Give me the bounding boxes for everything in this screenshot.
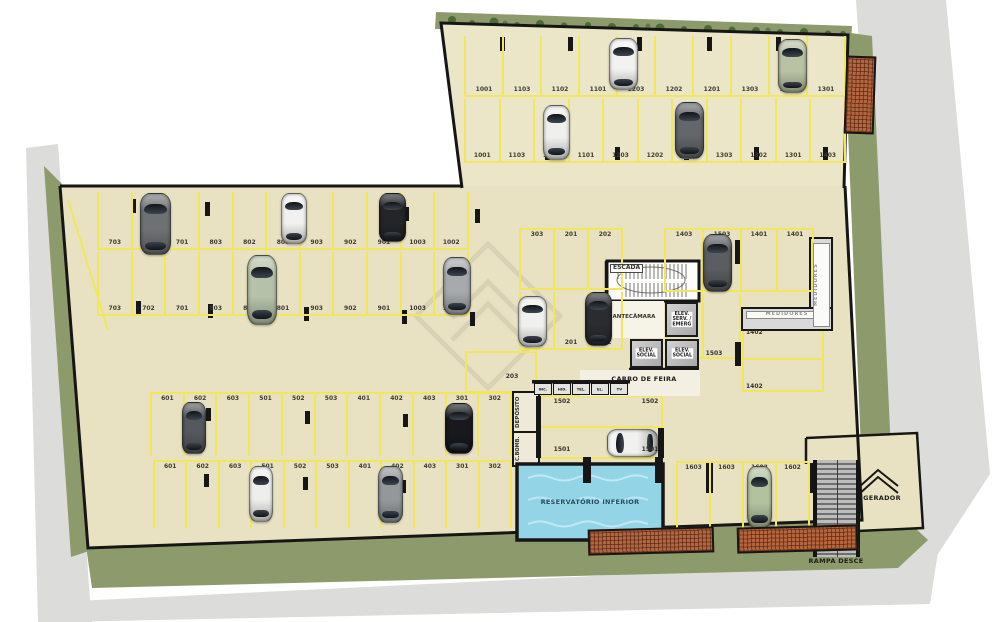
parking-stall: 502 — [281, 394, 314, 456]
brick-planter — [737, 524, 859, 553]
parking-stall: 403 — [412, 394, 445, 456]
parking-stall: 1401 — [776, 230, 814, 290]
parking-stall: 603 — [215, 394, 248, 456]
stall-number: 1001 — [474, 153, 491, 159]
pump-room-label: C.BOMB. — [516, 434, 536, 464]
service-elevator: ELEV. SERV. / EMERG — [665, 302, 698, 337]
stall-number: 402 — [390, 396, 403, 402]
stall-number: 302 — [488, 464, 501, 470]
stall-number: 503 — [325, 396, 338, 402]
stall-number: 401 — [359, 464, 372, 470]
car-icon — [518, 296, 547, 347]
stall-number: 1101 — [590, 87, 607, 93]
stall-number: 1401 — [751, 232, 768, 238]
stall-number: 701 — [176, 240, 189, 246]
stall-number: 301 — [456, 464, 469, 470]
shaft-label: TEL. — [577, 387, 586, 391]
parking-stall: 1002 — [433, 192, 469, 248]
stall-number: 1101 — [578, 153, 595, 159]
parking-stall: 401 — [346, 394, 379, 456]
shaft-box-tv: TV — [610, 383, 628, 395]
parking-stall: 1001 — [464, 99, 499, 161]
stall-number: 1401 — [787, 232, 804, 238]
parking-stall: 902 — [332, 192, 366, 248]
stall-number: 801 — [277, 306, 290, 312]
parking-stall: 703 — [97, 192, 131, 248]
parking-stall: 601 — [153, 462, 185, 528]
car-icon — [543, 105, 570, 160]
stall-number: 1202 — [666, 87, 683, 93]
parking-stall: 1203 — [602, 99, 637, 161]
stall-number: 902 — [344, 240, 357, 246]
car-icon — [778, 39, 807, 93]
stall-number: 603 — [227, 396, 240, 402]
stall-number: 201 — [565, 340, 578, 346]
stall-label-1502: 1502 — [638, 399, 662, 406]
parking-row-d1: 303201202 — [519, 228, 623, 290]
parking-stall: 1003 — [400, 252, 434, 314]
parking-stall: 902 — [332, 252, 366, 314]
parking-row-g1: 1603160316021602 — [676, 461, 810, 530]
stall-number: 301 — [456, 396, 469, 402]
parking-stall: 501 — [248, 394, 281, 456]
parking-stall: 1202 — [637, 99, 672, 161]
parking-stall: 402 — [379, 394, 412, 456]
stall-number: 602 — [196, 464, 209, 470]
stall-number: 702 — [142, 306, 155, 312]
stall-number: 1002 — [443, 240, 460, 246]
shaft-box-inc: INC. — [534, 383, 552, 395]
parking-stall: 301 — [445, 462, 477, 528]
car-icon — [378, 466, 403, 523]
stall-number: 502 — [294, 464, 307, 470]
parking-stall: 502 — [283, 462, 315, 528]
brick-planter — [588, 526, 715, 555]
stall-number: 1301 — [785, 153, 802, 159]
parking-stall: 603 — [218, 462, 250, 528]
stall-number: 501 — [259, 396, 272, 402]
car-icon — [182, 402, 206, 454]
car-icon — [247, 255, 277, 325]
stall-number: 1301 — [818, 87, 835, 93]
parking-stall: 1102 — [540, 36, 578, 95]
stall-number: 601 — [164, 464, 177, 470]
shaft-label: INC. — [539, 387, 548, 391]
social-elevator-2: ELEV. SOCIAL — [665, 339, 699, 368]
stall-number: 1203 — [612, 153, 629, 159]
stall-number: 1603 — [718, 465, 735, 471]
stall-number: 201 — [565, 232, 578, 238]
stall-number: 502 — [292, 396, 305, 402]
parking-stall: 803 — [198, 252, 232, 314]
parking-stall: 1103 — [502, 36, 540, 95]
parking-stall: 1401 — [740, 230, 776, 290]
shaft-box-tel: TEL. — [572, 383, 590, 395]
parking-stall: 1303 — [706, 99, 741, 161]
social-elevator-1: ELEV. SOCIAL — [630, 339, 663, 368]
parking-stall: 1301 — [775, 99, 810, 161]
stall-label-1501: 1501 — [638, 447, 662, 454]
meters-room-label-vertical: MEDIDORES — [813, 243, 830, 327]
brick-planter — [844, 56, 877, 135]
parking-stall: 903 — [299, 252, 333, 314]
car-icon — [443, 257, 471, 315]
car-icon — [445, 403, 473, 454]
stall-number: 1602 — [784, 465, 801, 471]
shaft-box-hid: HID. — [553, 383, 571, 395]
parking-stall: 602 — [185, 462, 217, 528]
ramp-label: RAMPA DESCE — [795, 558, 877, 565]
stall-number: 1201 — [704, 87, 721, 93]
stall-number: 1303 — [716, 153, 733, 159]
parking-stall: 1602 — [775, 463, 810, 530]
car-icon — [281, 193, 307, 244]
stall-number: 302 — [488, 396, 501, 402]
stall-label-1501: 1501 — [550, 447, 574, 454]
parking-stall: 803 — [198, 192, 232, 248]
stall-number: 1103 — [514, 87, 531, 93]
stall-number: 1003 — [409, 306, 426, 312]
parking-stall: 802 — [232, 192, 266, 248]
stall-number: 1603 — [685, 465, 702, 471]
stall-number: 503 — [326, 464, 339, 470]
parking-stall: 202 — [587, 230, 623, 288]
parking-stall: 1103 — [499, 99, 534, 161]
car-icon — [249, 466, 273, 522]
stall-label-1503: 1503 — [700, 351, 728, 358]
stall-number: 1403 — [819, 153, 836, 159]
parking-stall: 901 — [366, 252, 400, 314]
stall-number: 1403 — [676, 232, 693, 238]
stall-number: 403 — [423, 396, 436, 402]
stall-number: 803 — [209, 306, 222, 312]
parking-stall: 601 — [150, 394, 183, 456]
car-icon — [379, 193, 406, 242]
reservoir-label: RESERVATÓRIO INFERIOR — [520, 499, 660, 506]
car-icon — [675, 102, 704, 159]
car-icon — [609, 38, 638, 90]
parking-stall: 201 — [553, 292, 587, 348]
parking-row-b2: 70370270180380280190390290110031002 — [97, 252, 469, 316]
car-icon — [703, 234, 732, 292]
shaft-label: EL. — [597, 387, 603, 391]
parking-stall: 302 — [478, 462, 512, 528]
stall-number: 202 — [599, 232, 612, 238]
shaft-label: HID. — [557, 387, 566, 391]
stall-number: 1103 — [508, 153, 525, 159]
parking-stall: 1403 — [809, 99, 846, 161]
parking-stall: 1603 — [709, 463, 742, 530]
stall-number: 1003 — [409, 240, 426, 246]
stall-number: 703 — [109, 240, 122, 246]
stall-label-1402: 1402 — [746, 330, 772, 337]
stall-label-1402: 1402 — [746, 384, 772, 391]
stall-number: 703 — [109, 306, 122, 312]
stall-number: 902 — [344, 306, 357, 312]
stairs-label: ESCADA — [610, 264, 643, 273]
parking-stall: 703 — [97, 252, 131, 314]
stall-label-203: 203 — [498, 374, 526, 381]
parking-stall: 1302 — [740, 99, 775, 161]
stall-number: 1302 — [750, 153, 767, 159]
stall-number: 601 — [161, 396, 174, 402]
parking-stall: 401 — [348, 462, 380, 528]
stall-number: 701 — [176, 306, 189, 312]
parking-stall: 201 — [553, 230, 587, 288]
service-elevator-label: ELEV. SERV. / EMERG — [671, 312, 692, 327]
parking-stall: 1301 — [806, 36, 846, 95]
stall-number: 903 — [310, 306, 323, 312]
antechamber-label: ANTECÂMARA — [605, 314, 663, 320]
parking-stall: 702 — [131, 252, 165, 314]
parking-row-f1: 14011401 — [740, 228, 814, 292]
car-icon — [140, 193, 171, 255]
parking-stall: 1001 — [464, 36, 502, 95]
stall-number: 403 — [424, 464, 437, 470]
stall-number: 1001 — [476, 87, 493, 93]
parking-stall: 302 — [477, 394, 512, 456]
parking-stall: 701 — [164, 252, 198, 314]
stall-number: 1303 — [742, 87, 759, 93]
stall-label-1502: 1502 — [550, 399, 574, 406]
parking-stall: 1603 — [676, 463, 709, 530]
stall-number: 303 — [531, 232, 544, 238]
parking-stall: 1202 — [654, 36, 692, 95]
parking-row-a2: 1001110311021101120312021201130313021301… — [464, 99, 846, 163]
shaft-box-el: EL. — [591, 383, 609, 395]
parking-stall: 403 — [413, 462, 445, 528]
parking-stall: 1303 — [730, 36, 768, 95]
car-icon — [747, 466, 772, 528]
parking-stall: 503 — [314, 394, 347, 456]
stall-number: 1202 — [647, 153, 664, 159]
parking-stall: 1403 — [664, 230, 702, 290]
parking-row-c2: 601602603501502503401402403301302 — [153, 460, 512, 528]
stall-number: 1102 — [552, 87, 569, 93]
stall-number: 603 — [229, 464, 242, 470]
stall-number: 803 — [209, 240, 222, 246]
parking-stall: 303 — [519, 230, 553, 288]
parking-stall: 1201 — [692, 36, 730, 95]
stall-number: 802 — [243, 240, 256, 246]
parking-stall: 503 — [315, 462, 347, 528]
parking-stall: 1101 — [568, 99, 603, 161]
social-elevator-label: ELEV. SOCIAL — [636, 348, 657, 358]
stall-number: 901 — [378, 306, 391, 312]
storage-room-label: DEPÓSITO — [516, 394, 536, 430]
social-elevator-label: ELEV. SOCIAL — [671, 348, 692, 358]
stall-number: 401 — [358, 396, 371, 402]
shaft-label: TV — [616, 387, 621, 391]
stall-number: 903 — [310, 240, 323, 246]
garage-floor-plan: 1001110311021101120312021201130313021301… — [0, 0, 1000, 622]
